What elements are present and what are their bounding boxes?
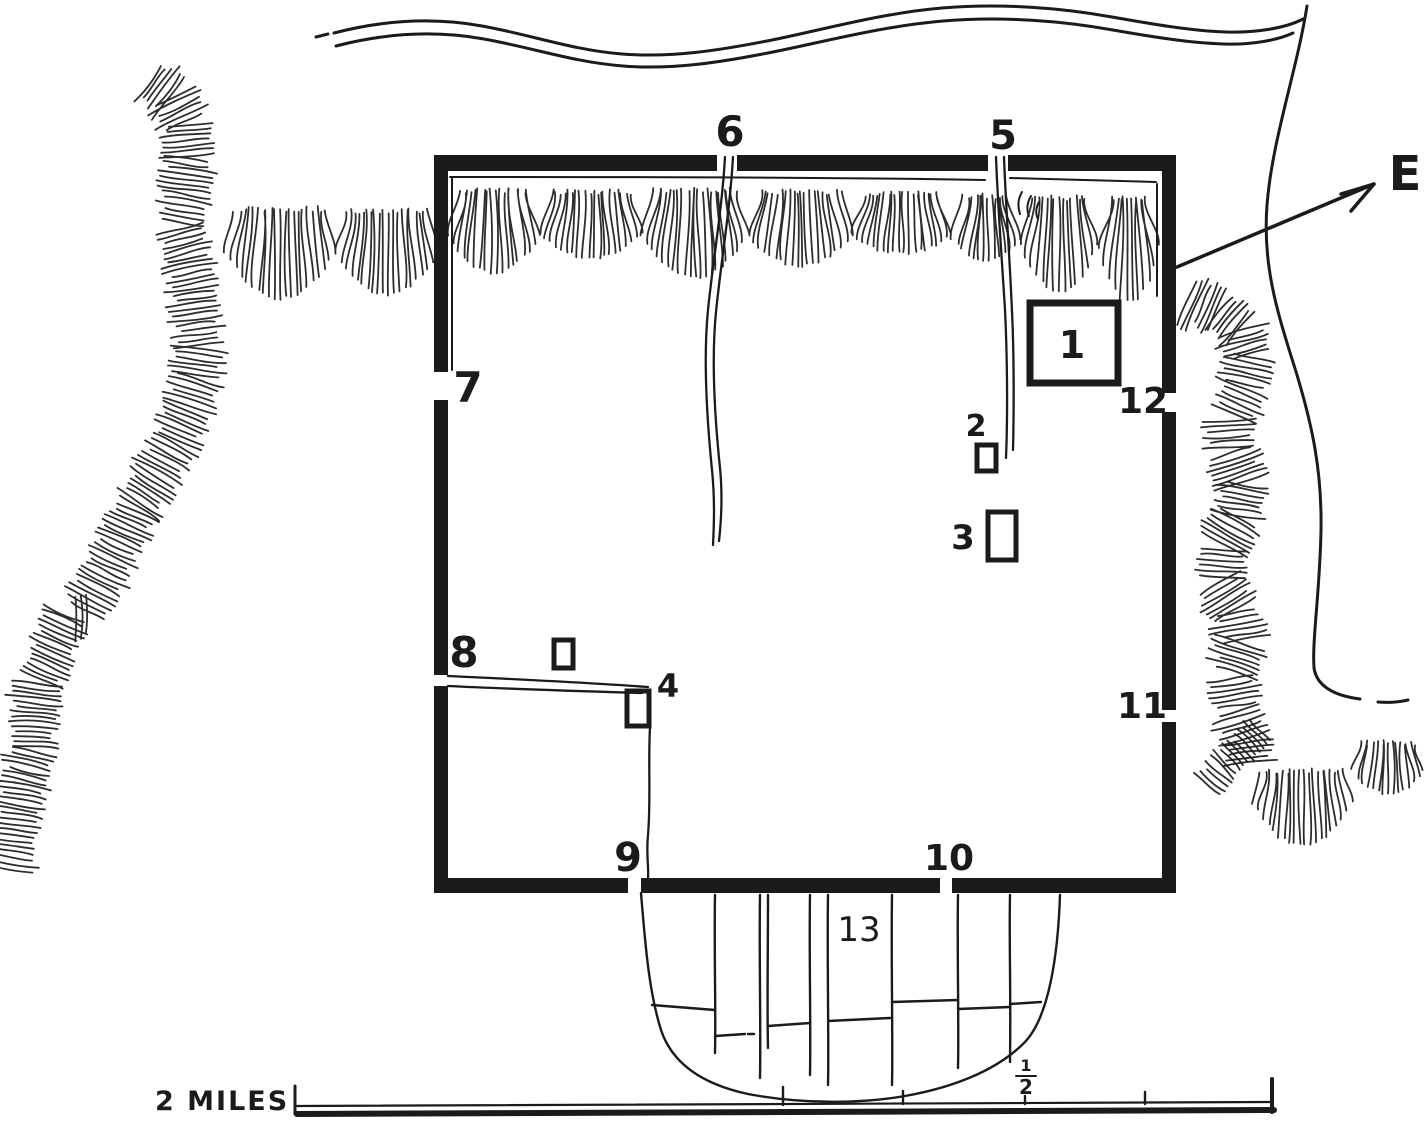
marker-3-label: 3 (951, 518, 975, 558)
marker-4-label: 4 (657, 667, 679, 705)
marker-9-label: 9 (614, 835, 642, 881)
east-wall-south-segment (1162, 722, 1176, 893)
scale-lower-line (297, 1110, 1274, 1114)
divider-line (810, 895, 811, 1075)
fraction-denominator: 2 (1019, 1075, 1033, 1099)
divider-line (828, 895, 829, 1085)
west-wall-south-segment (434, 686, 448, 893)
old-city-plan-map: 2 MILES 1 2 E 1 2 3 4 5 6 7 8 9 10 11 12… (0, 0, 1427, 1128)
marker-6-label: 6 (715, 107, 744, 156)
west-wall-north-segment (434, 155, 448, 372)
marker-7-label: 7 (453, 363, 482, 412)
divider-line (760, 895, 761, 1078)
marker-2-label: 2 (966, 409, 987, 444)
divider-line (958, 895, 959, 1068)
marker-13-label: 13 (837, 910, 880, 950)
north-wall-east-segment (1008, 155, 1176, 171)
west-wall-middle-segment (434, 400, 448, 675)
marker-1-label: 1 (1059, 323, 1085, 367)
south-wall-west-segment (434, 878, 628, 893)
divider-line (892, 895, 893, 1085)
map-figure: 2 MILES 1 2 E 1 2 3 4 5 6 7 8 9 10 11 12… (0, 0, 1427, 1128)
divider-line (1010, 895, 1011, 1062)
scale-caption: 2 MILES (155, 1086, 289, 1117)
east-wall-middle-segment (1162, 412, 1176, 710)
east-wall-north-segment (1162, 155, 1176, 393)
marker-12-label: 12 (1118, 381, 1168, 422)
east-compass-label: E (1389, 146, 1422, 202)
south-wall-east-segment (952, 878, 1176, 893)
north-wall-middle-segment (737, 155, 988, 171)
fraction-numerator: 1 (1020, 1056, 1031, 1075)
marker-5-label: 5 (989, 113, 1017, 159)
north-wall-west-segment (434, 155, 717, 171)
marker-11-label: 11 (1117, 686, 1167, 727)
south-wall-middle-segment (641, 878, 940, 893)
divider-line (715, 895, 716, 1053)
marker-8-label: 8 (449, 628, 478, 677)
marker-10-label: 10 (924, 838, 974, 879)
